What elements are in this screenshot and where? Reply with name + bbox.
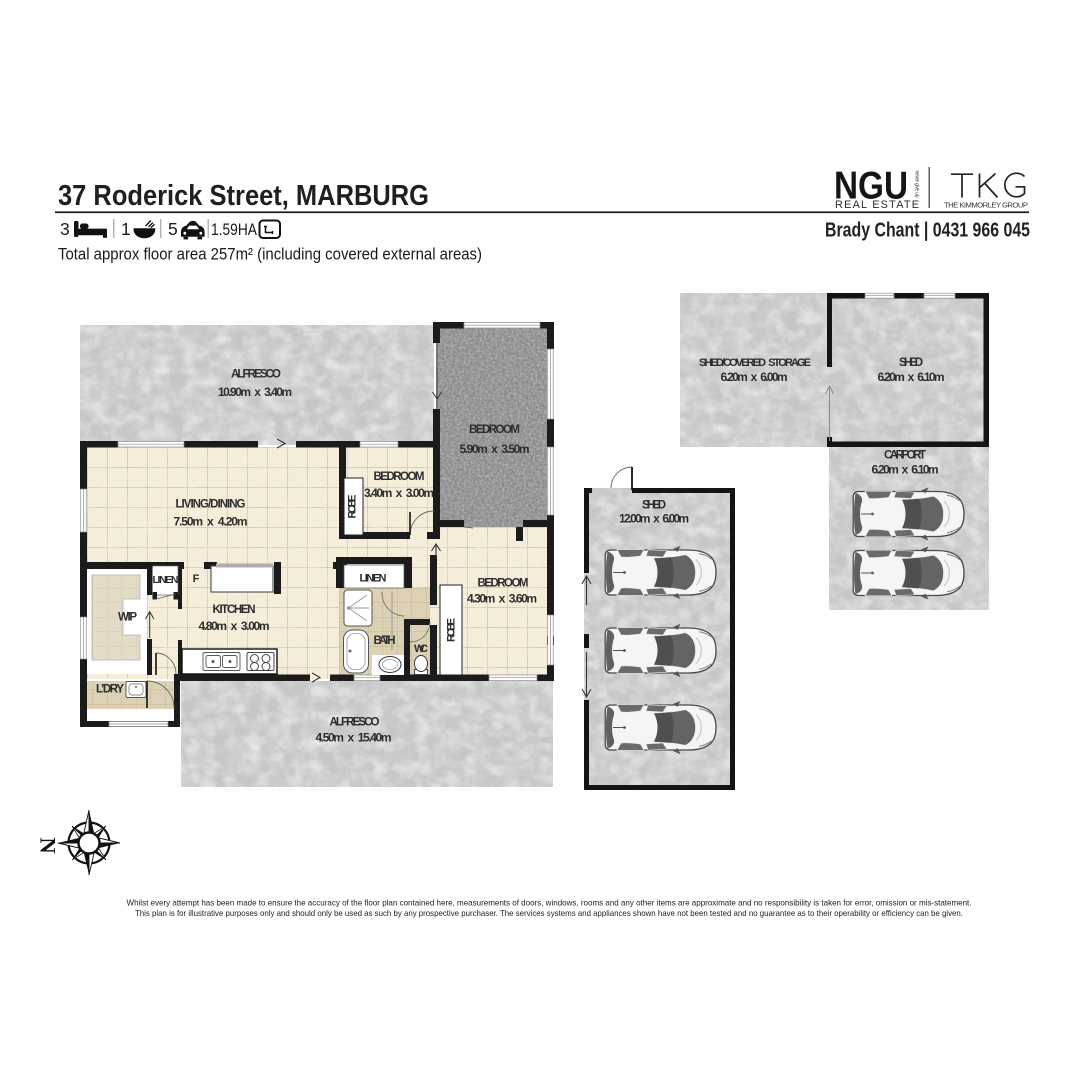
svg-text:6.20m x 6.10m: 6.20m x 6.10m	[872, 463, 939, 477]
svg-text:REAL ESTATE: REAL ESTATE	[835, 199, 919, 211]
svg-text:SHED: SHED	[642, 500, 666, 512]
svg-text:6.20m x 6.00m: 6.20m x 6.00m	[721, 370, 788, 384]
svg-text:7.50m x 4.20m: 7.50m x 4.20m	[174, 515, 248, 529]
svg-text:never give up: never give up	[914, 171, 920, 198]
svg-text:3: 3	[60, 219, 70, 239]
svg-text:5.90m x 3.50m: 5.90m x 3.50m	[460, 442, 530, 456]
svg-text:BEDROOM: BEDROOM	[374, 471, 425, 483]
svg-text:THE KIMMORLEY GROUP: THE KIMMORLEY GROUP	[944, 201, 1028, 210]
svg-text:BEDROOM: BEDROOM	[478, 578, 529, 590]
svg-text:6.20m x 6.10m: 6.20m x 6.10m	[878, 370, 945, 384]
svg-text:ROBE: ROBE	[446, 618, 458, 642]
svg-text:N: N	[36, 837, 61, 853]
svg-text:1.59HA: 1.59HA	[211, 220, 258, 239]
svg-text:1: 1	[121, 219, 131, 239]
svg-text:L’DRY: L’DRY	[96, 684, 124, 696]
svg-text:LINEN: LINEN	[153, 574, 179, 586]
svg-text:Total approx floor area 257m²: Total approx floor area 257m² (including…	[58, 245, 482, 264]
svg-text:BEDROOM: BEDROOM	[469, 424, 520, 436]
svg-text:4.30m x 3.60m: 4.30m x 3.60m	[467, 592, 537, 606]
svg-text:BATH: BATH	[374, 635, 396, 647]
svg-text:F: F	[193, 573, 200, 585]
svg-text:ROBE: ROBE	[347, 495, 359, 519]
svg-text:Brady Chant | 0431 966 045: Brady Chant | 0431 966 045	[825, 220, 1030, 242]
svg-text:ALFRESCO: ALFRESCO	[231, 369, 281, 381]
svg-text:KITCHEN: KITCHEN	[213, 604, 256, 616]
svg-text:WIP: WIP	[118, 612, 137, 624]
svg-text:3.40m x 3.00m: 3.40m x 3.00m	[364, 486, 434, 500]
svg-text:WC: WC	[414, 643, 428, 655]
svg-text:5: 5	[168, 219, 178, 239]
svg-text:4.50m x 15.40m: 4.50m x 15.40m	[316, 731, 392, 745]
svg-text:37 Roderick Street, MARBURG: 37 Roderick Street, MARBURG	[58, 180, 429, 212]
svg-text:LIVING/DINING: LIVING/DINING	[176, 499, 246, 511]
svg-text:This plan is for illustrative: This plan is for illustrative purposes o…	[135, 908, 963, 918]
svg-text:LINEN: LINEN	[360, 573, 387, 585]
svg-text:SHED/COVERED STORAGE: SHED/COVERED STORAGE	[699, 357, 811, 369]
svg-text:Whilst every attempt has been: Whilst every attempt has been made to en…	[127, 898, 972, 908]
svg-text:CARPORT: CARPORT	[884, 450, 926, 462]
svg-text:4.80m x 3.00m: 4.80m x 3.00m	[199, 619, 270, 633]
svg-text:SHED: SHED	[899, 357, 923, 369]
svg-text:12.00m x 6.00m: 12.00m x 6.00m	[619, 512, 689, 526]
svg-text:10.90m x 3.40m: 10.90m x 3.40m	[218, 385, 292, 399]
svg-text:ALFRESCO: ALFRESCO	[330, 717, 380, 729]
